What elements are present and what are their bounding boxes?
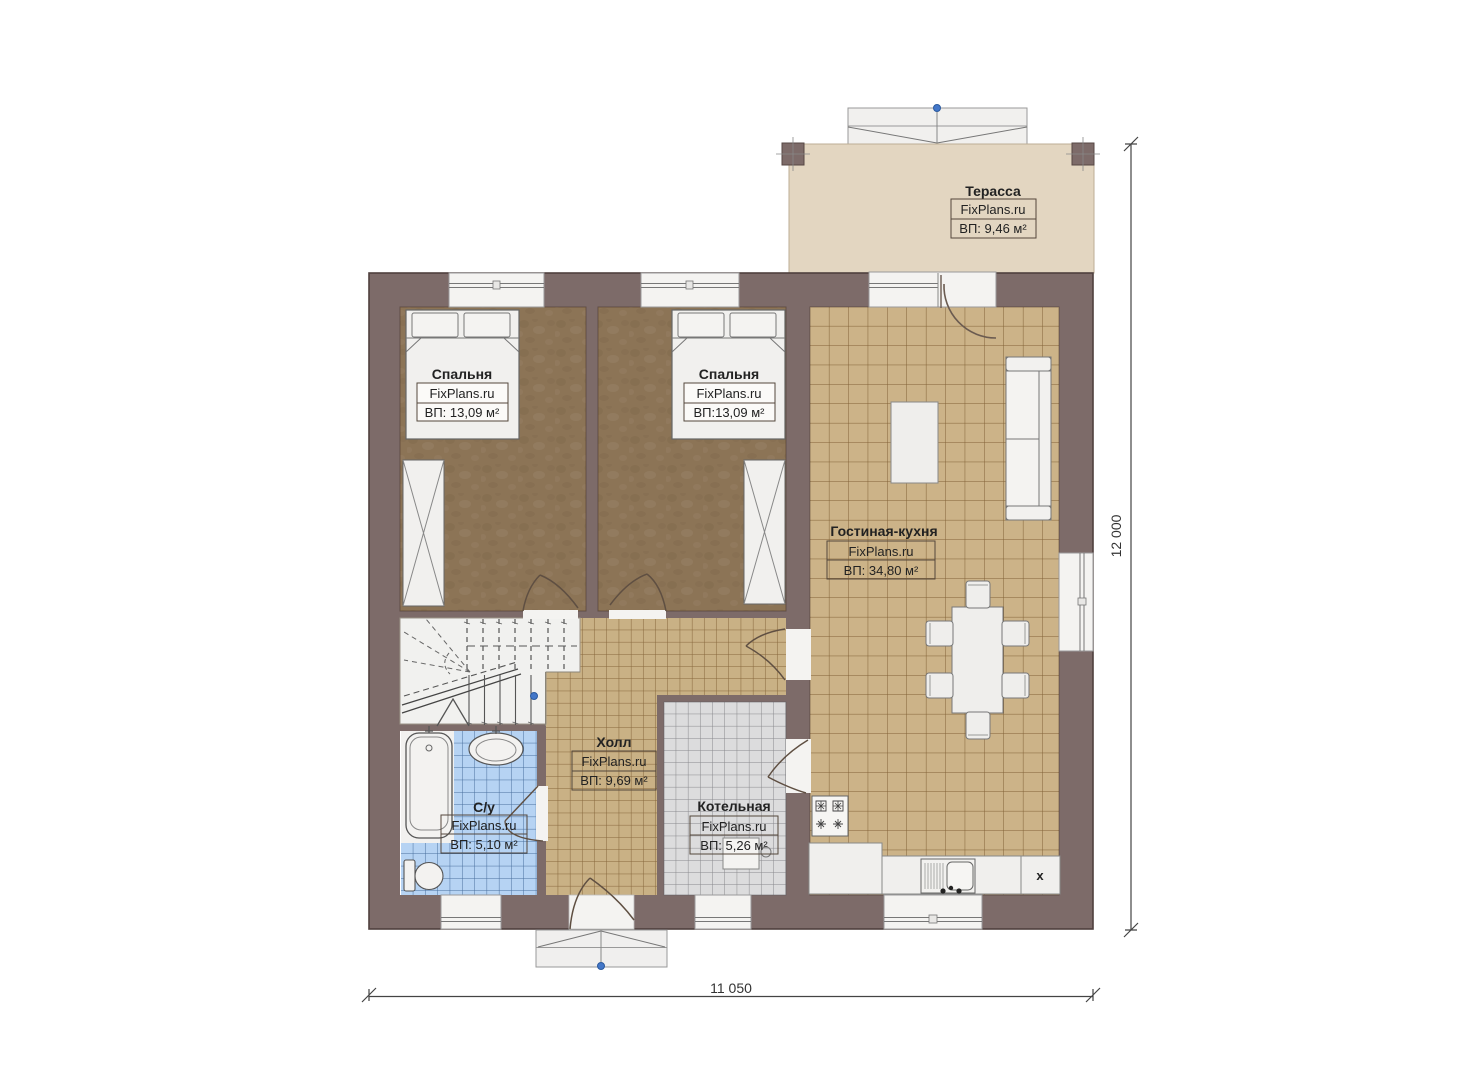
svg-text:FixPlans.ru: FixPlans.ru [429, 386, 494, 401]
svg-text:С/у: С/у [473, 799, 495, 815]
svg-text:ВП: 5,26 м²: ВП: 5,26 м² [700, 838, 768, 853]
svg-text:FixPlans.ru: FixPlans.ru [701, 819, 766, 834]
svg-text:Котельная: Котельная [697, 798, 770, 814]
svg-text:ВП:13,09 м²: ВП:13,09 м² [693, 405, 765, 420]
svg-text:Терасса: Терасса [965, 183, 1021, 199]
svg-text:ВП: 9,69 м²: ВП: 9,69 м² [580, 773, 648, 788]
svg-text:12 000: 12 000 [1108, 514, 1124, 557]
svg-text:Спальня: Спальня [432, 366, 492, 382]
svg-text:FixPlans.ru: FixPlans.ru [451, 818, 516, 833]
svg-text:ВП: 5,10 м²: ВП: 5,10 м² [450, 837, 518, 852]
svg-text:FixPlans.ru: FixPlans.ru [696, 386, 761, 401]
svg-text:FixPlans.ru: FixPlans.ru [581, 754, 646, 769]
svg-text:11 050: 11 050 [710, 980, 752, 996]
svg-text:FixPlans.ru: FixPlans.ru [960, 202, 1025, 217]
svg-text:х: х [1036, 868, 1044, 883]
svg-text:FixPlans.ru: FixPlans.ru [848, 544, 913, 559]
svg-text:Гостиная-кухня: Гостиная-кухня [830, 523, 937, 539]
svg-text:Спальня: Спальня [699, 366, 759, 382]
svg-text:ВП: 34,80 м²: ВП: 34,80 м² [844, 563, 919, 578]
svg-text:ВП: 9,46 м²: ВП: 9,46 м² [959, 221, 1027, 236]
svg-text:ВП: 13,09 м²: ВП: 13,09 м² [425, 405, 500, 420]
svg-text:Холл: Холл [596, 734, 631, 750]
